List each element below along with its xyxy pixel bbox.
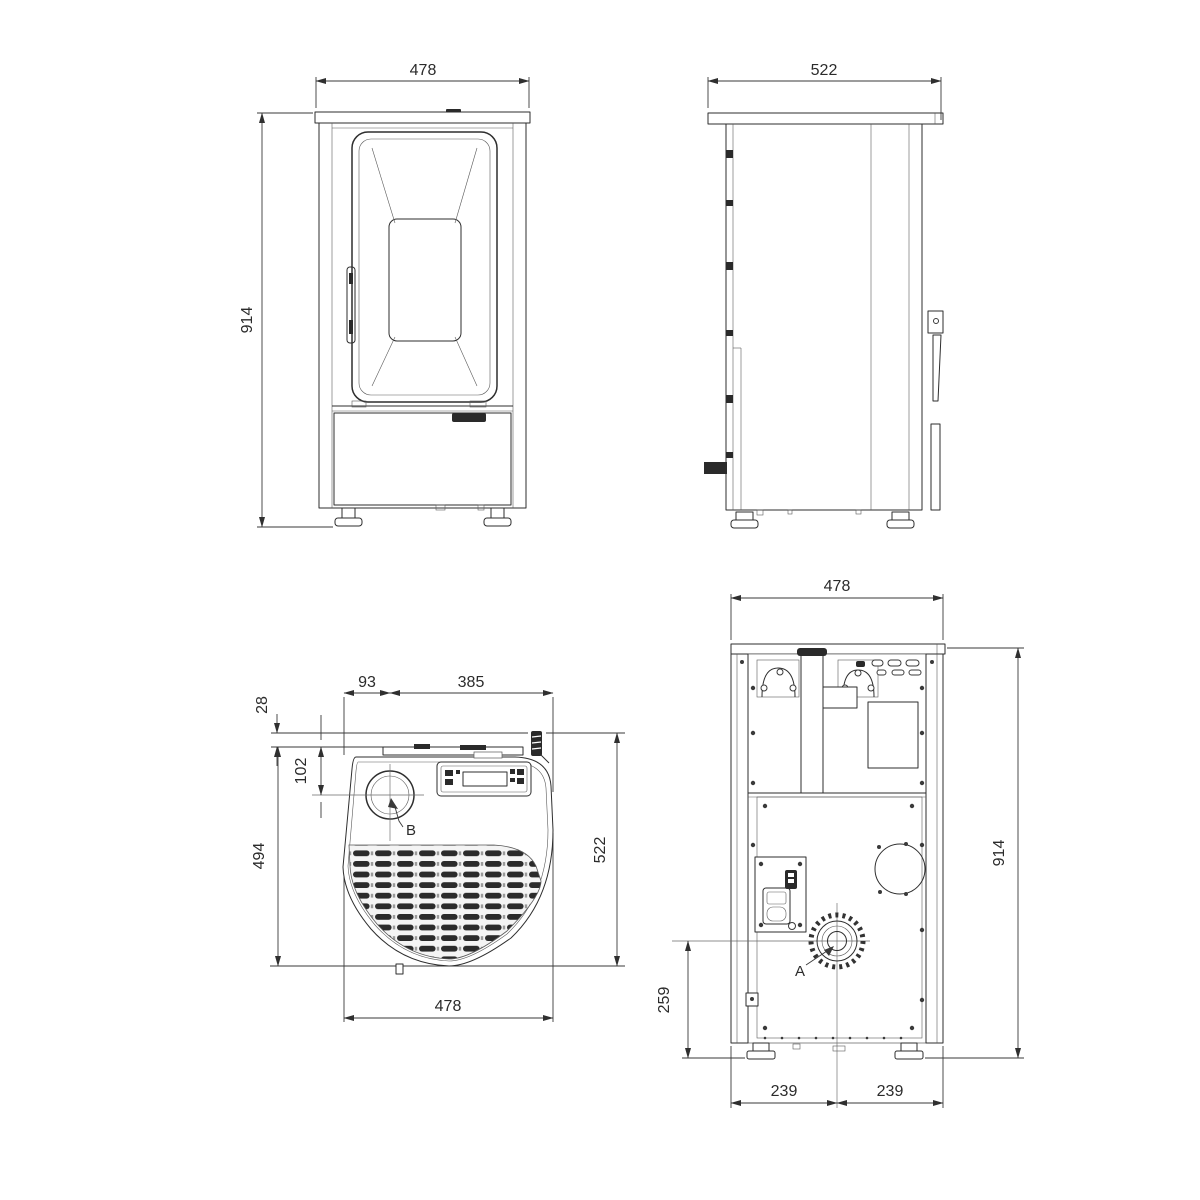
- front-height-value: 914: [239, 307, 256, 334]
- svg-text:239: 239: [771, 1083, 798, 1100]
- brand-label: [452, 413, 486, 422]
- technical-drawing-canvas: 478 914: [0, 0, 1200, 1200]
- side-body: [704, 113, 943, 510]
- front-lower-panel: [332, 401, 513, 510]
- side-feet: [731, 510, 914, 528]
- top-dim-body-depth: 494: [251, 747, 278, 966]
- svg-text:259: 259: [656, 987, 673, 1014]
- side-door-handle: [928, 311, 943, 510]
- svg-text:385: 385: [458, 674, 485, 691]
- side-power-inlet: [704, 462, 727, 474]
- svg-text:28: 28: [254, 696, 271, 714]
- top-dim-width: 478: [344, 998, 553, 1018]
- svg-text:93: 93: [358, 674, 376, 691]
- top-dim-flue-from-back: 102: [293, 715, 321, 818]
- front-feet: [335, 508, 511, 526]
- back-dim-width: 478: [731, 578, 943, 640]
- top-dim-total-depth: 522: [592, 733, 617, 966]
- svg-text:102: 102: [293, 758, 310, 785]
- top-dim-flue-from-left: 93: [344, 674, 390, 693]
- side-depth-value: 522: [811, 62, 838, 79]
- stove-dimensional-drawing: 478 914: [0, 0, 1200, 1200]
- top-grille: [349, 845, 541, 959]
- top-dim-lever-overhang: 28: [254, 696, 277, 766]
- top-dim-flue-to-right: 385: [390, 674, 553, 693]
- top-view: B 93 385 28: [251, 674, 625, 1022]
- back-outlet-label: A: [795, 963, 805, 980]
- back-hopper-channel: [801, 654, 823, 793]
- front-view: 478 914: [239, 62, 530, 527]
- front-dim-width: 478: [316, 62, 529, 108]
- top-flue-label: B: [406, 822, 416, 839]
- svg-text:494: 494: [251, 843, 268, 870]
- side-view: 522: [704, 62, 943, 528]
- svg-text:478: 478: [824, 578, 851, 595]
- svg-text:478: 478: [435, 998, 462, 1015]
- svg-text:239: 239: [877, 1083, 904, 1100]
- svg-text:914: 914: [991, 840, 1008, 867]
- side-dim-depth: 522: [708, 62, 941, 120]
- back-view: A: [656, 578, 1024, 1108]
- svg-text:522: 522: [592, 837, 609, 864]
- back-power-box: [755, 857, 806, 932]
- front-width-value: 478: [410, 62, 437, 79]
